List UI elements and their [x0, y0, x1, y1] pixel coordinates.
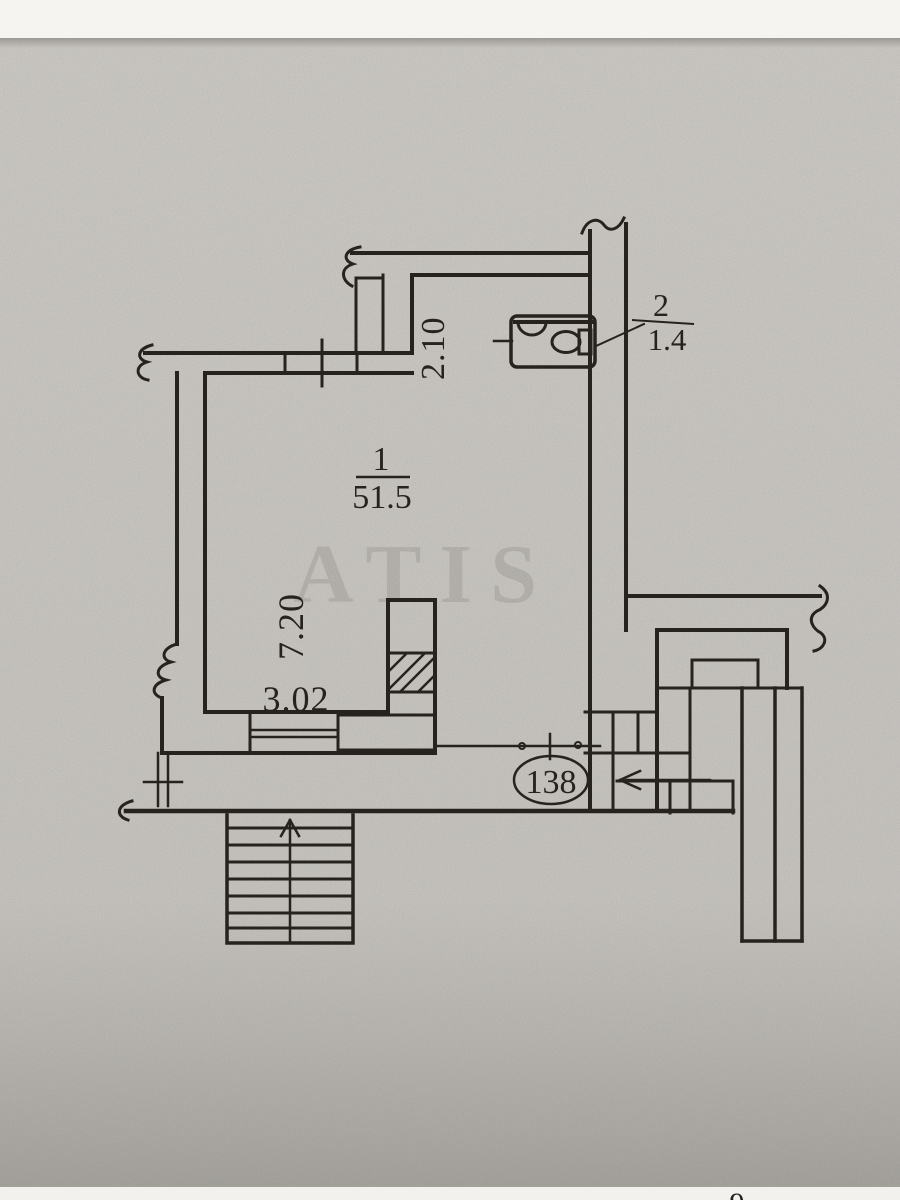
scanner-bottom-band: [0, 1186, 900, 1200]
dim-corridor-width: 2.10: [415, 317, 452, 381]
scanned-floor-plan-page: ATIS: [0, 0, 900, 1200]
watermark-text: ATIS: [293, 528, 555, 621]
scanner-top-band: [0, 0, 900, 38]
dim-left-wall: 7.20: [271, 593, 311, 660]
paper-top-edge-shadow: [0, 38, 900, 48]
room1-area: 51.5: [352, 479, 412, 516]
room1-number: 1: [373, 441, 390, 478]
floor-plan-canvas: ATIS: [0, 0, 900, 1200]
dim-bottom-segment: 3.02: [263, 679, 330, 719]
room2-number: 2: [653, 287, 669, 323]
unit-number-text: 138: [526, 764, 577, 801]
room2-area: 1.4: [648, 322, 687, 357]
page-fragment-digit: 9: [730, 1187, 745, 1200]
